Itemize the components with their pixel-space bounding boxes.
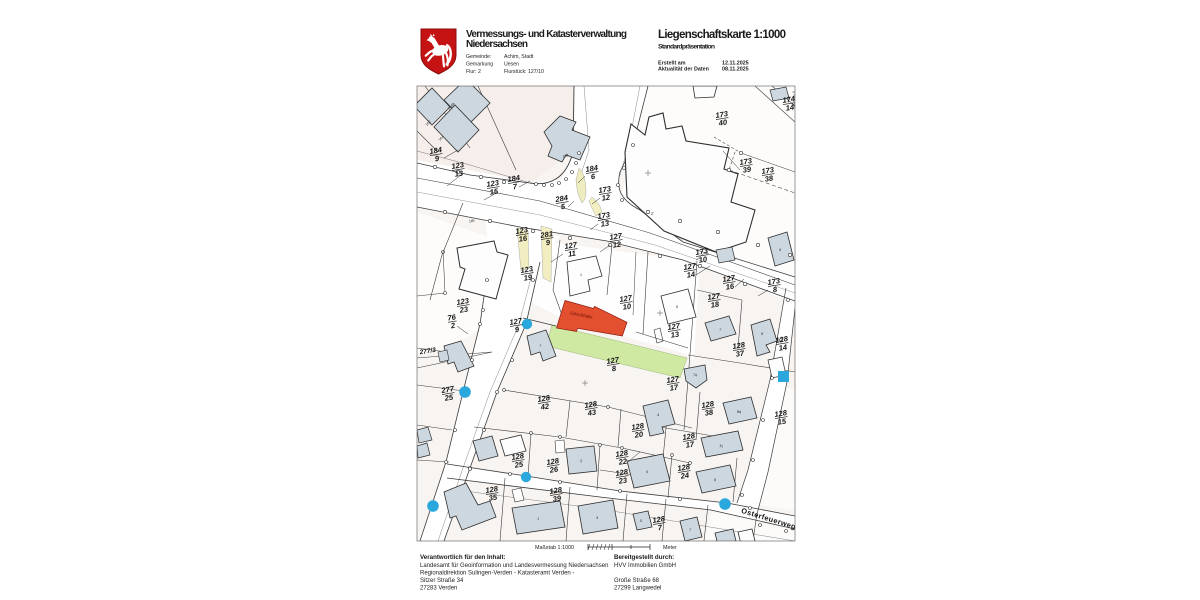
svg-text:Regionaldirektion Sulingen-Ver: Regionaldirektion Sulingen-Verden - Kata… (420, 571, 574, 577)
svg-text:Bereitgestellt durch:: Bereitgestellt durch: (614, 554, 674, 561)
svg-text:Große Straße 68: Große Straße 68 (614, 578, 660, 584)
svg-text:Standardpräsentation: Standardpräsentation (658, 44, 715, 51)
svg-text:Niedersachsen: Niedersachsen (466, 39, 528, 50)
svg-text:Landesamt für Geoinformation u: Landesamt für Geoinformation und Landesv… (420, 563, 608, 569)
svg-text:1: 1 (580, 273, 582, 277)
svg-text:11: 11 (567, 249, 576, 259)
svg-text:08.11.2025: 08.11.2025 (722, 67, 749, 73)
svg-text:Flur:: Flur: (466, 69, 476, 75)
svg-text:11: 11 (719, 444, 723, 449)
svg-text:Meter: Meter (663, 545, 677, 551)
svg-text:Gemarkung: Gemarkung (466, 62, 493, 68)
svg-text:5: 5 (676, 305, 678, 309)
svg-text:Uesen: Uesen (504, 62, 519, 68)
svg-text:Maßstab 1:1000: Maßstab 1:1000 (535, 545, 574, 551)
svg-text:27283 Verden: 27283 Verden (420, 586, 457, 592)
svg-text:2: 2 (478, 69, 481, 75)
svg-text:HVV Immobilien GmbH: HVV Immobilien GmbH (614, 563, 676, 569)
svg-text:Sitzer Straße 34: Sitzer Straße 34 (420, 578, 464, 584)
svg-text:Achim, Stadt: Achim, Stadt (504, 54, 534, 60)
svg-text:Liegenschaftskarte 1:1000: Liegenschaftskarte 1:1000 (658, 29, 786, 41)
svg-text:Gemeinde:: Gemeinde: (466, 54, 491, 60)
svg-text:Flurstück:: Flurstück: (504, 69, 526, 75)
svg-text:127/10: 127/10 (528, 69, 544, 75)
svg-text:Aktualität der Daten: Aktualität der Daten (658, 67, 709, 73)
svg-text:27299 Langwedel: 27299 Langwedel (614, 586, 661, 592)
svg-text:Verantwortlich für den Inhalt:: Verantwortlich für den Inhalt: (420, 554, 506, 561)
